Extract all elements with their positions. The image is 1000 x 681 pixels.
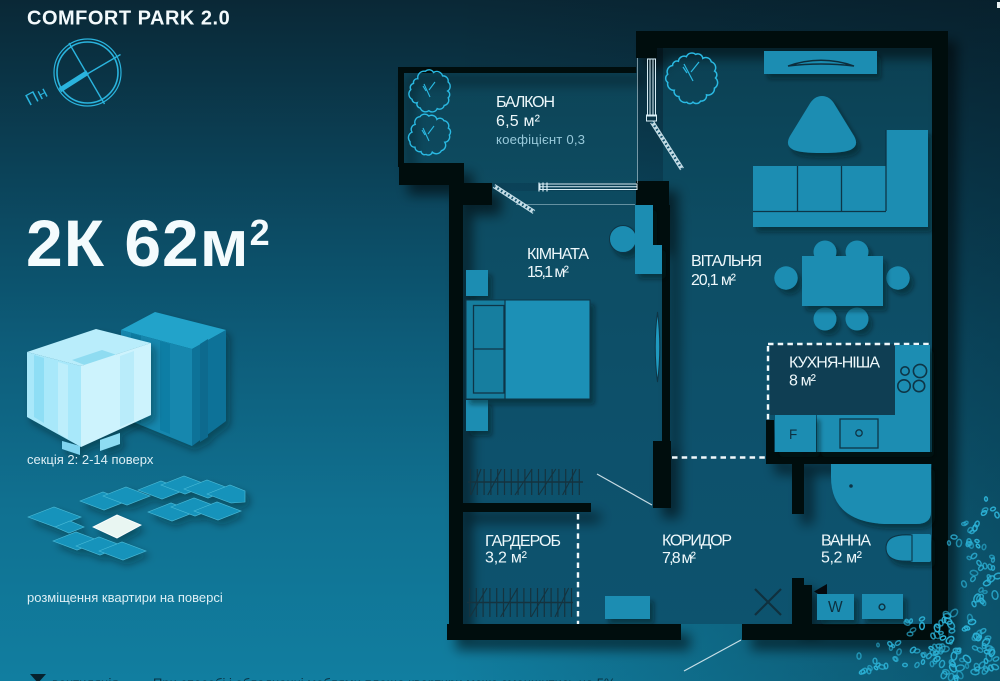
svg-text:W: W: [828, 599, 843, 616]
svg-text:20,1 м²: 20,1 м²: [691, 272, 737, 289]
svg-text:При способі і обладнанні мебля: При способі і обладнанні меблями площа к…: [153, 676, 616, 681]
svg-text:КОРИДОР: КОРИДОР: [662, 533, 732, 550]
svg-text:ГАРДЕРОБ: ГАРДЕРОБ: [485, 533, 561, 550]
svg-text:15,1 м²: 15,1 м²: [527, 264, 570, 281]
svg-text:вентиляція: вентиляція: [52, 676, 118, 681]
svg-text:2К 62м2: 2К 62м2: [26, 206, 271, 280]
svg-text:F: F: [789, 427, 797, 442]
svg-text:7,8 м²: 7,8 м²: [662, 550, 697, 567]
svg-text:коефіцієнт 0,3: коефіцієнт 0,3: [496, 132, 585, 147]
svg-text:5,2 м²: 5,2 м²: [821, 550, 863, 567]
svg-text:6,5 м²: 6,5 м²: [496, 113, 541, 130]
svg-text:розміщення квартири на поверсі: розміщення квартири на поверсі: [27, 590, 223, 605]
svg-text:секція 2: 2-14 поверх: секція 2: 2-14 поверх: [27, 452, 154, 467]
svg-text:БАЛКОН: БАЛКОН: [496, 94, 555, 111]
svg-text:3,2 м²: 3,2 м²: [485, 550, 528, 567]
svg-text:ВІТАЛЬНЯ: ВІТАЛЬНЯ: [691, 253, 762, 270]
svg-text:КУХНЯ-НІША: КУХНЯ-НІША: [789, 355, 880, 372]
svg-text:КІМНАТА: КІМНАТА: [527, 246, 589, 263]
svg-text:ВАННА: ВАННА: [821, 533, 871, 550]
svg-text:8 м²: 8 м²: [789, 373, 817, 390]
svg-text:COMFORT PARK 2.0: COMFORT PARK 2.0: [27, 8, 230, 30]
